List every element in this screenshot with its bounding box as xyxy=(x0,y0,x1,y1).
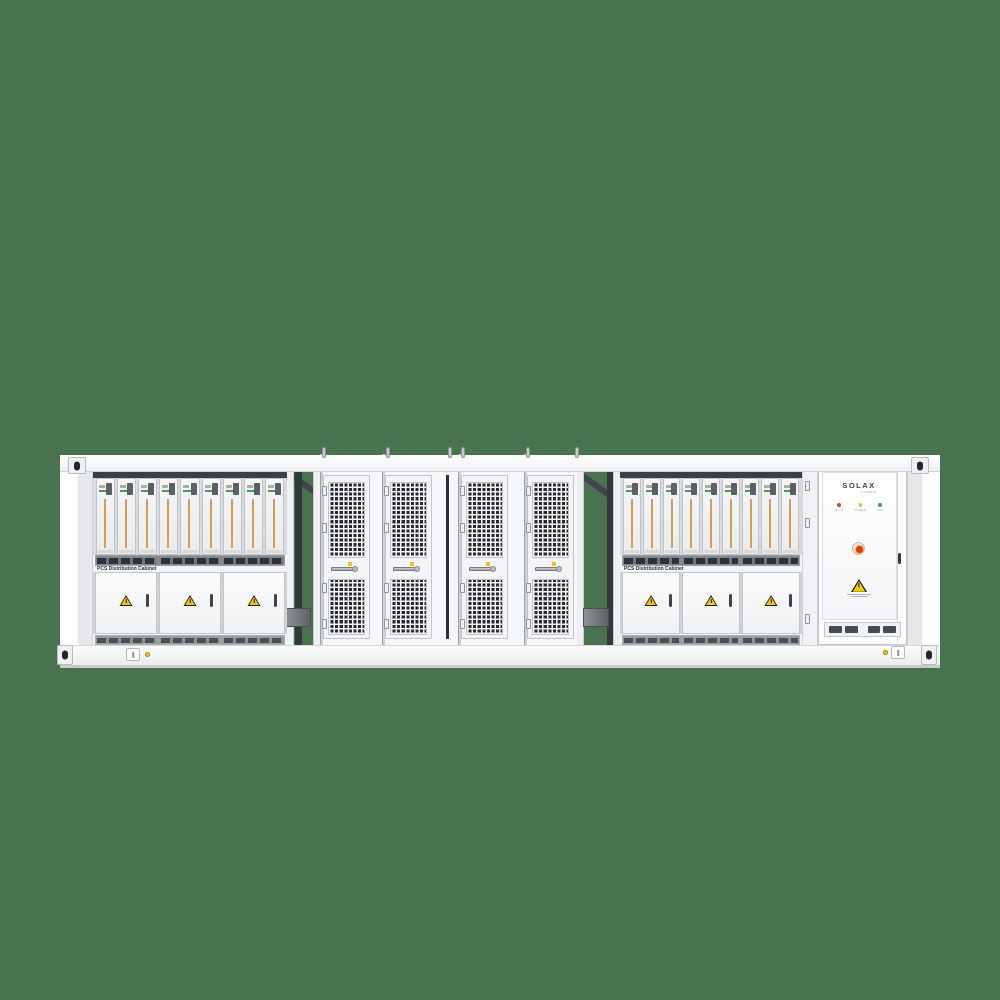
right-end-post xyxy=(907,455,940,668)
warning-decal xyxy=(819,579,899,597)
module-handle xyxy=(106,483,112,495)
latch-pivot xyxy=(352,566,358,572)
divider-post xyxy=(802,471,818,645)
casting-hole xyxy=(926,651,932,660)
hinge xyxy=(322,523,327,533)
module-stripe xyxy=(252,499,254,548)
latch-pivot xyxy=(556,566,562,572)
module-label-plate xyxy=(120,485,126,488)
scene-background: PCS Distribution Cabinet xyxy=(0,0,1000,1000)
access-door xyxy=(159,572,221,634)
hinge xyxy=(460,523,465,533)
module-base xyxy=(645,550,659,553)
warning-sticker xyxy=(410,562,414,566)
latch-pivot xyxy=(490,566,496,572)
mesh-door xyxy=(385,475,432,639)
access-door xyxy=(95,572,157,634)
warning-triangle-icon xyxy=(645,595,658,606)
module-stripe xyxy=(651,499,653,548)
hinge xyxy=(805,481,810,491)
bottom-vent-band xyxy=(95,635,285,645)
module-base xyxy=(704,550,718,553)
battery-module xyxy=(202,478,221,555)
module-base xyxy=(744,550,758,553)
module-handle xyxy=(652,483,658,495)
warning-triangle-icon xyxy=(248,595,261,606)
mesh-door xyxy=(527,475,574,639)
vent-segment xyxy=(743,558,798,564)
mesh-grille-lower xyxy=(390,579,427,635)
rack-top-frame xyxy=(620,471,802,478)
mesh-door-section xyxy=(320,471,577,645)
hinge xyxy=(526,486,531,496)
access-door xyxy=(742,572,800,634)
corner-casting xyxy=(68,457,86,474)
corner-casting xyxy=(911,457,929,474)
vent-slot xyxy=(829,626,842,633)
warning-triangle-icon xyxy=(765,595,778,606)
module-handle xyxy=(770,483,776,495)
door-latch xyxy=(324,562,369,574)
mesh-door xyxy=(461,475,508,639)
control-cabinet: SOLAX POWER FAULT POWER RUN xyxy=(818,468,907,645)
access-door xyxy=(223,572,285,634)
battery-module xyxy=(117,478,136,555)
battery-module-row xyxy=(93,478,287,555)
battery-module xyxy=(623,478,641,555)
door-latch xyxy=(462,562,507,574)
warning-sticker xyxy=(348,562,352,566)
module-stripe xyxy=(104,499,106,548)
access-door-row xyxy=(620,572,802,634)
latch-pivot xyxy=(414,566,420,572)
module-base xyxy=(119,550,134,553)
mesh-grille-upper xyxy=(328,482,365,558)
warning-triangle-icon xyxy=(851,579,867,592)
module-stripe xyxy=(769,499,771,548)
hinge-pin xyxy=(526,447,530,458)
decal-text-line xyxy=(847,594,871,595)
rack-section-left: PCS Distribution Cabinet xyxy=(93,471,287,645)
warning-triangle-icon xyxy=(120,595,133,606)
hinge xyxy=(322,619,327,629)
module-base xyxy=(625,550,639,553)
vent-segment xyxy=(224,638,283,643)
mesh-grille-upper xyxy=(466,482,503,558)
warning-sticker xyxy=(486,562,490,566)
vent-segment xyxy=(743,638,798,643)
module-base xyxy=(684,550,698,553)
vent-slot xyxy=(868,626,881,633)
led-dot xyxy=(837,503,841,507)
module-stripe xyxy=(671,499,673,548)
vent-segment xyxy=(684,638,739,643)
led-label: RUN xyxy=(877,508,884,512)
module-handle xyxy=(191,483,197,495)
casting-hole xyxy=(74,461,80,470)
warning-triangle-icon xyxy=(705,595,718,606)
module-stripe xyxy=(188,499,190,548)
cabinet-vent xyxy=(824,622,901,637)
door-handle xyxy=(789,594,792,607)
module-handle xyxy=(691,483,697,495)
module-label-plate xyxy=(646,485,652,488)
module-label-plate xyxy=(226,485,232,488)
hinge xyxy=(526,619,531,629)
hinge-pin xyxy=(448,447,452,458)
vent-segment xyxy=(624,558,679,564)
emergency-stop-button xyxy=(852,542,865,555)
status-led-row: FAULT POWER RUN xyxy=(819,503,899,512)
module-stripe xyxy=(210,499,212,548)
door-handle xyxy=(669,594,672,607)
frame-edge xyxy=(313,471,320,645)
battery-module xyxy=(742,478,760,555)
module-handle xyxy=(711,483,717,495)
hinge xyxy=(384,523,389,533)
brand-logo: SOLAX POWER xyxy=(819,481,899,494)
brand-subtitle: POWER xyxy=(829,490,909,494)
left-end-post xyxy=(60,455,93,668)
vent-segment xyxy=(161,558,220,564)
battery-module xyxy=(159,478,178,555)
module-stripe xyxy=(730,499,732,548)
base-switch xyxy=(891,646,905,659)
module-handle xyxy=(148,483,154,495)
status-led-run: RUN xyxy=(877,503,884,512)
module-handle xyxy=(632,483,638,495)
module-label-plate xyxy=(99,485,105,488)
battery-module xyxy=(244,478,263,555)
battery-module xyxy=(781,478,799,555)
led-dot xyxy=(859,503,863,507)
hinge xyxy=(384,486,389,496)
battery-module xyxy=(96,478,115,555)
rack-top-frame xyxy=(93,471,287,478)
module-base xyxy=(246,550,261,553)
battery-module xyxy=(702,478,720,555)
center-seam xyxy=(446,475,449,639)
module-stripe xyxy=(273,499,275,548)
module-label-plate xyxy=(247,485,253,488)
module-base xyxy=(98,550,113,553)
access-door xyxy=(622,572,680,634)
hinge xyxy=(526,523,531,533)
module-handle xyxy=(233,483,239,495)
door-handle xyxy=(274,594,277,607)
module-stripe xyxy=(690,499,692,548)
support-bracket xyxy=(287,608,311,627)
vent-segment xyxy=(684,558,739,564)
warning-sticker xyxy=(552,562,556,566)
access-door xyxy=(682,572,740,634)
top-rail xyxy=(60,455,940,472)
vent-band xyxy=(95,555,285,566)
door-latch xyxy=(386,562,431,574)
module-base xyxy=(783,550,797,553)
hinge xyxy=(384,619,389,629)
module-stripe xyxy=(710,499,712,548)
mesh-grille-lower xyxy=(466,579,503,635)
hinge xyxy=(460,619,465,629)
module-base xyxy=(665,550,679,553)
module-handle xyxy=(275,483,281,495)
battery-module xyxy=(663,478,681,555)
module-handle xyxy=(169,483,175,495)
module-stripe xyxy=(631,499,633,548)
hinge xyxy=(805,614,810,624)
module-handle xyxy=(127,483,133,495)
vent-band xyxy=(622,555,800,566)
storage-container: PCS Distribution Cabinet xyxy=(60,455,940,668)
bottom-vent-band xyxy=(622,635,800,645)
status-led-fault: FAULT xyxy=(835,503,844,512)
led-label: FAULT xyxy=(835,508,844,512)
battery-module xyxy=(643,478,661,555)
vent-slot xyxy=(883,626,896,633)
module-base xyxy=(724,550,738,553)
warning-triangle-icon xyxy=(184,595,197,606)
battery-module xyxy=(223,478,242,555)
module-label-plate xyxy=(141,485,147,488)
frame-edge xyxy=(613,471,620,645)
battery-module xyxy=(722,478,740,555)
casting-hole xyxy=(917,461,923,470)
battery-module xyxy=(682,478,700,555)
module-base xyxy=(267,550,282,553)
battery-module xyxy=(761,478,779,555)
bottom-rail xyxy=(60,645,940,668)
mesh-grille-lower xyxy=(532,579,569,635)
frame-gap xyxy=(287,471,320,645)
battery-module xyxy=(265,478,284,555)
support-bracket xyxy=(583,608,609,627)
hinge-pin xyxy=(461,447,465,458)
hinge xyxy=(384,583,389,593)
module-stripe xyxy=(167,499,169,548)
access-door-row xyxy=(93,572,287,634)
module-handle xyxy=(254,483,260,495)
hinge xyxy=(526,583,531,593)
module-label-plate xyxy=(205,485,211,488)
hinge xyxy=(805,518,810,528)
module-label-plate xyxy=(183,485,189,488)
battery-module xyxy=(138,478,157,555)
door-latch xyxy=(528,562,573,574)
mesh-door xyxy=(323,475,370,639)
module-stripe xyxy=(146,499,148,548)
door-handle xyxy=(729,594,732,607)
casting-hole xyxy=(62,651,68,660)
brand-name: SOLAX xyxy=(819,481,899,490)
vent-segment xyxy=(161,638,220,643)
vent-segment xyxy=(624,638,679,643)
hinge-pin xyxy=(575,447,579,458)
module-handle xyxy=(731,483,737,495)
battery-module-row xyxy=(620,478,802,555)
module-label-plate xyxy=(268,485,274,488)
status-led-power: POWER xyxy=(855,503,866,512)
module-handle xyxy=(671,483,677,495)
hinge xyxy=(460,486,465,496)
indicator-dot xyxy=(145,652,150,657)
door-handle xyxy=(210,594,213,607)
hinge xyxy=(322,583,327,593)
module-label-plate xyxy=(162,485,168,488)
led-dot xyxy=(878,503,882,507)
led-label: POWER xyxy=(855,508,866,512)
mesh-grille-upper xyxy=(390,482,427,558)
module-base xyxy=(140,550,155,553)
module-stripe xyxy=(125,499,127,548)
decal-text-line xyxy=(851,596,868,597)
rack-section-right: PCS Distribution Cabinet xyxy=(620,471,802,645)
mesh-grille-lower xyxy=(328,579,365,635)
hinge xyxy=(460,583,465,593)
vent-slot xyxy=(845,626,858,633)
vent-segment xyxy=(97,638,156,643)
mesh-grille-upper xyxy=(532,482,569,558)
module-base xyxy=(161,550,176,553)
module-stripe xyxy=(750,499,752,548)
vent-segment xyxy=(97,558,156,564)
module-base xyxy=(182,550,197,553)
vent-segment xyxy=(224,558,283,564)
module-base xyxy=(204,550,219,553)
module-handle xyxy=(790,483,796,495)
indicator-dot xyxy=(883,650,888,655)
module-handle xyxy=(212,483,218,495)
module-base xyxy=(763,550,777,553)
cabinet-handle xyxy=(898,553,901,564)
module-base xyxy=(225,550,240,553)
module-stripe xyxy=(789,499,791,548)
frame-gap xyxy=(577,471,620,645)
battery-module xyxy=(180,478,199,555)
module-handle xyxy=(750,483,756,495)
hinge-pin xyxy=(322,447,326,458)
base-switch xyxy=(126,648,140,661)
corner-casting xyxy=(921,645,937,665)
hinge-pin xyxy=(386,447,390,458)
corner-casting xyxy=(57,645,73,665)
module-stripe xyxy=(231,499,233,548)
door-handle xyxy=(146,594,149,607)
hinge xyxy=(322,486,327,496)
